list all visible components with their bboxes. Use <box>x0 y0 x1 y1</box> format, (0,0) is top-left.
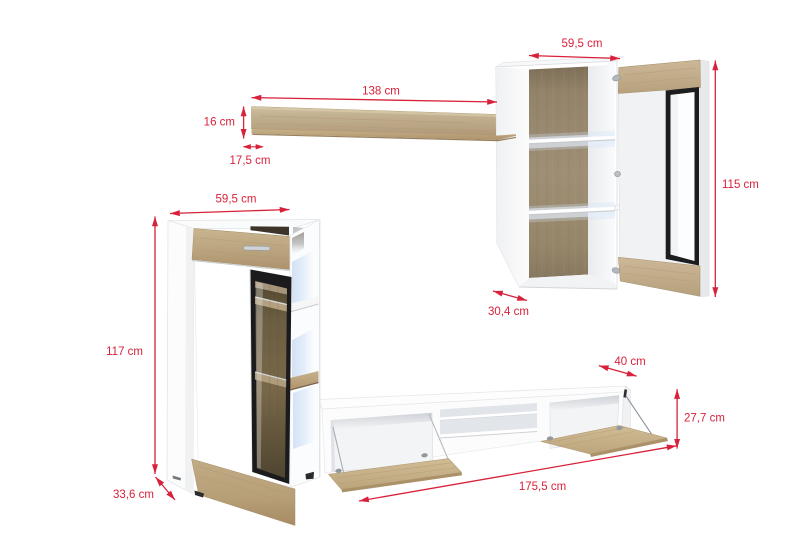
svg-text:40 cm: 40 cm <box>614 356 645 368</box>
svg-text:175,5 cm: 175,5 cm <box>519 481 566 493</box>
svg-text:117 cm: 117 cm <box>106 346 143 358</box>
svg-text:59,5 cm: 59,5 cm <box>562 38 603 50</box>
svg-text:27,7 cm: 27,7 cm <box>684 413 725 425</box>
svg-text:115 cm: 115 cm <box>722 179 759 191</box>
svg-text:33,6 cm: 33,6 cm <box>113 489 154 501</box>
svg-text:16 cm: 16 cm <box>204 117 235 129</box>
svg-text:30,4 cm: 30,4 cm <box>488 306 529 318</box>
svg-text:59,5 cm: 59,5 cm <box>216 194 257 206</box>
svg-text:17,5 cm: 17,5 cm <box>230 155 271 167</box>
svg-text:138 cm: 138 cm <box>362 86 400 98</box>
